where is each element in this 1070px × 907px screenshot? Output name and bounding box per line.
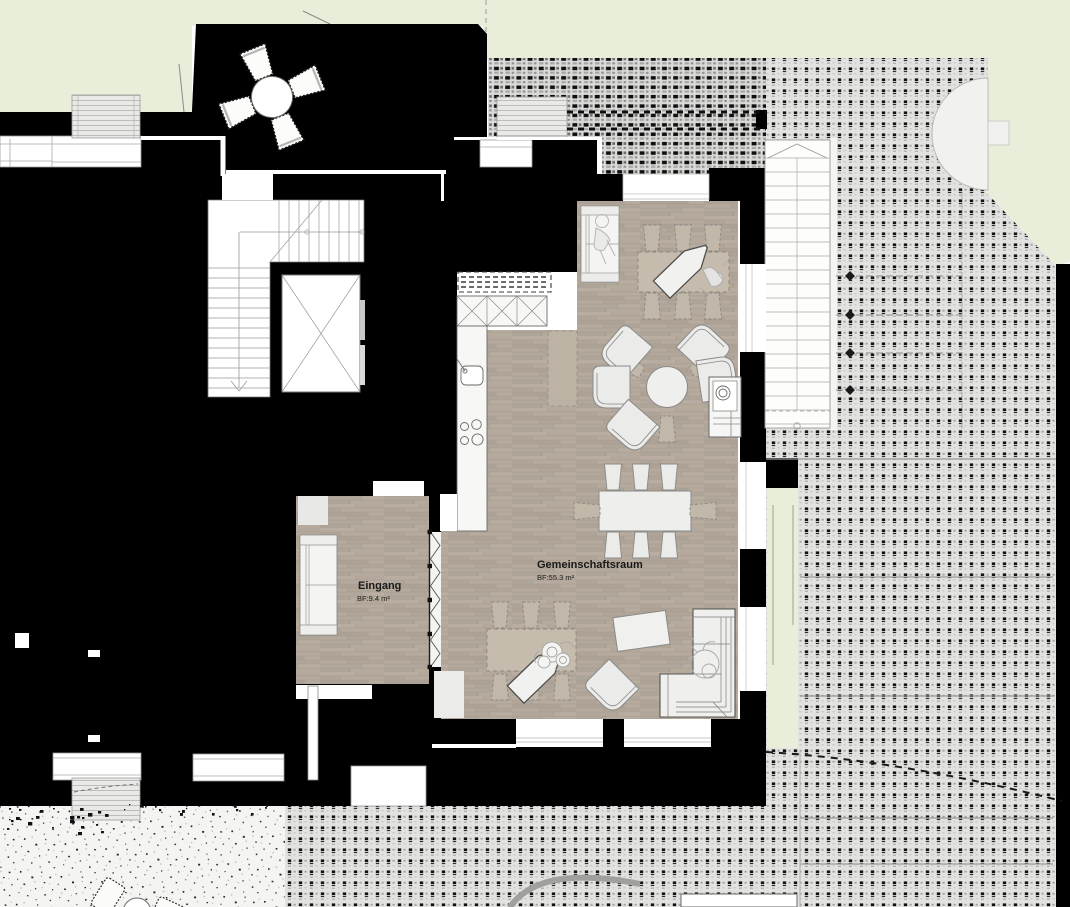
svg-text:Gemeinschaftsraum: Gemeinschaftsraum bbox=[537, 559, 643, 571]
svg-text:BF:55.3 m²: BF:55.3 m² bbox=[537, 573, 575, 582]
svg-text:Eingang: Eingang bbox=[358, 580, 401, 592]
svg-text:BF:9.4 m²: BF:9.4 m² bbox=[357, 594, 390, 603]
